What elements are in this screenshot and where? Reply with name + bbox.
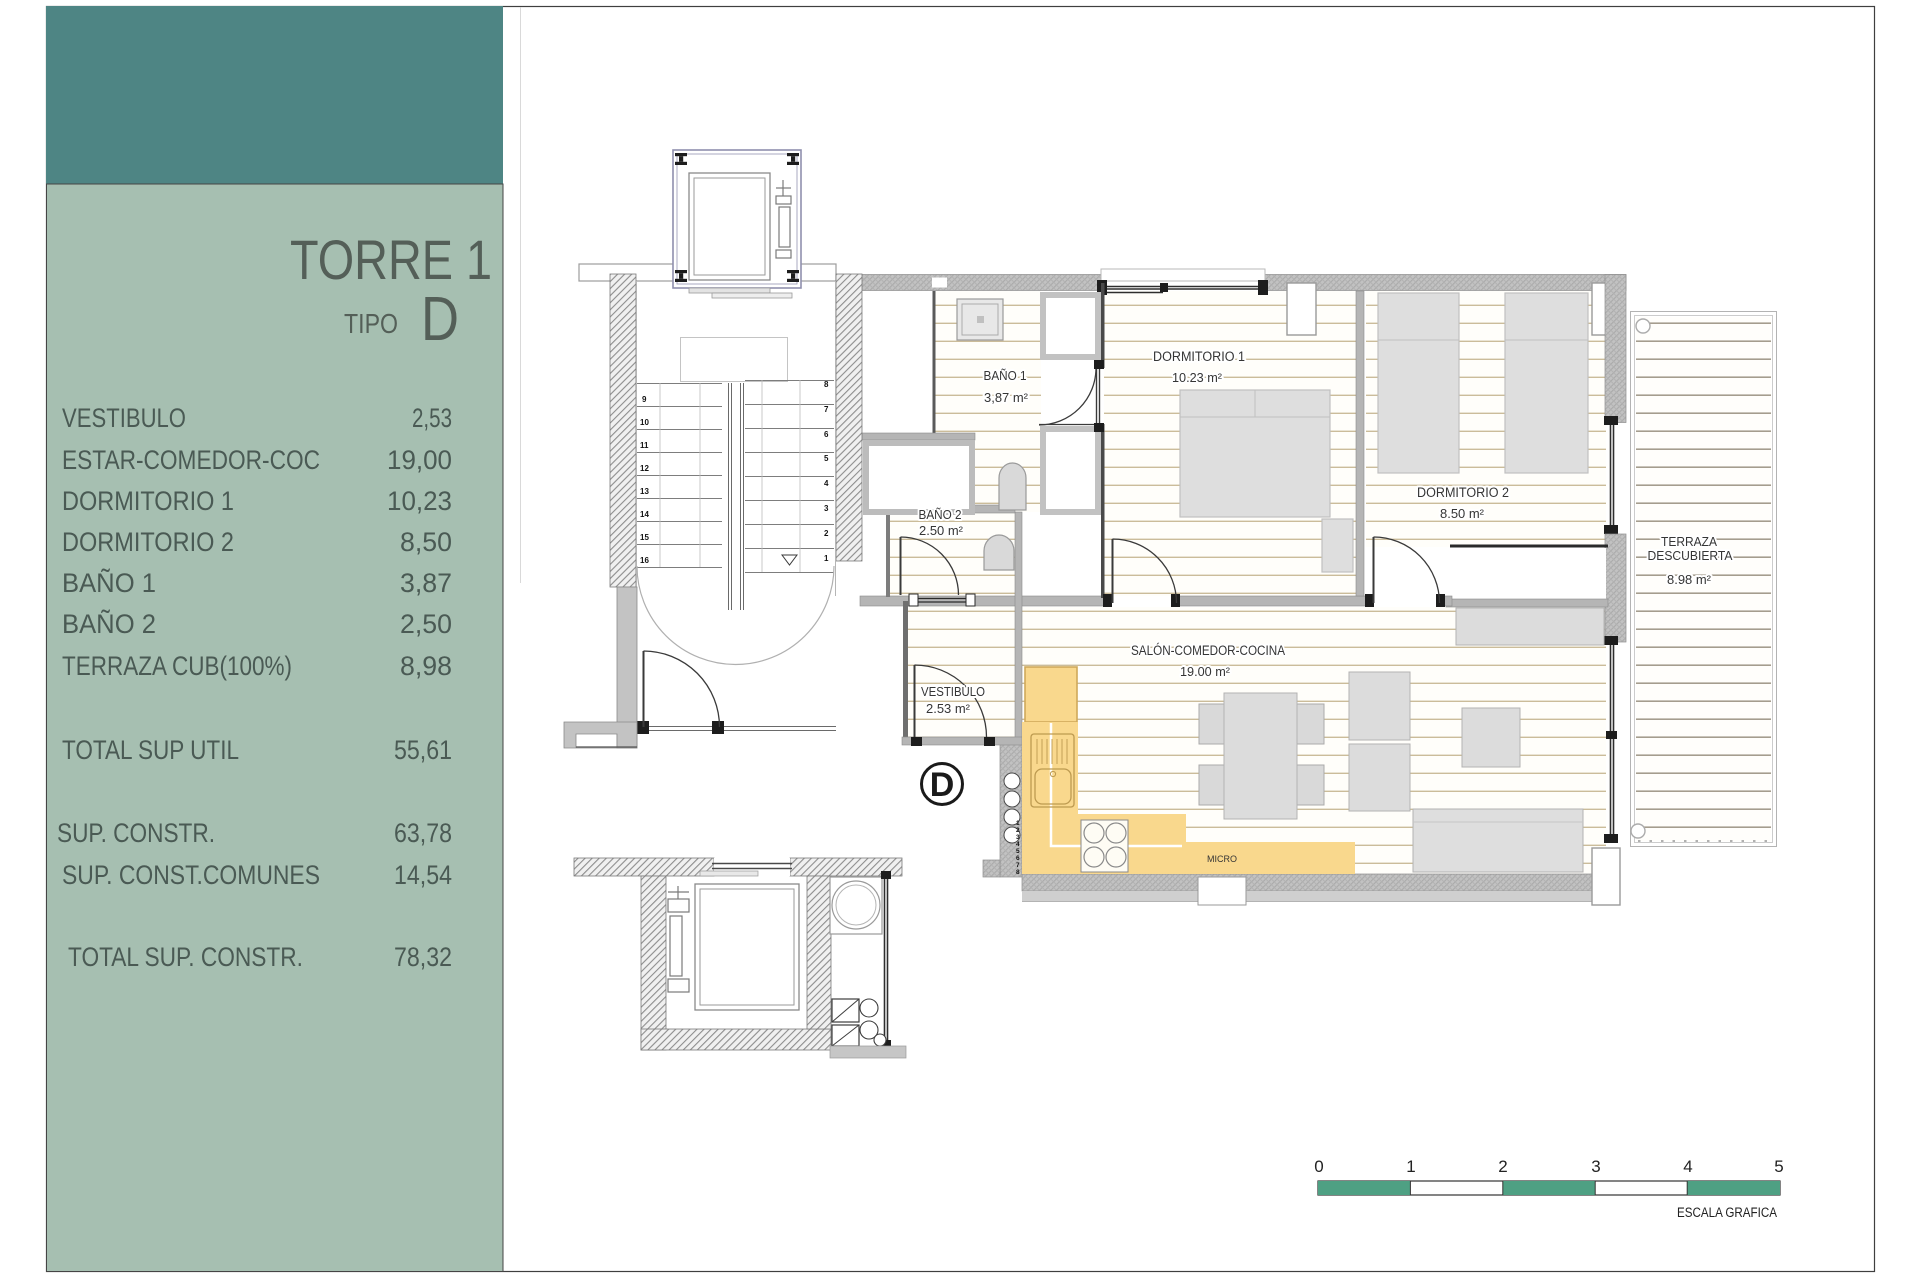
svg-text:8.98 m²: 8.98 m² — [1667, 573, 1711, 587]
svg-text:1: 1 — [824, 554, 829, 563]
svg-text:4: 4 — [1016, 841, 1020, 848]
svg-text:9: 9 — [642, 395, 647, 404]
svg-text:11: 11 — [640, 441, 649, 450]
svg-text:3: 3 — [1591, 1157, 1600, 1176]
svg-text:2,53: 2,53 — [412, 403, 452, 433]
svg-text:TORRE 1: TORRE 1 — [290, 228, 492, 291]
svg-text:15: 15 — [640, 533, 649, 542]
svg-text:2: 2 — [1016, 827, 1020, 834]
svg-text:TERRAZA CUB(100%): TERRAZA CUB(100%) — [62, 651, 292, 681]
svg-text:BAÑO 2: BAÑO 2 — [62, 609, 156, 639]
svg-text:3: 3 — [824, 504, 829, 513]
svg-text:TOTAL SUP. CONSTR.: TOTAL SUP. CONSTR. — [68, 942, 303, 972]
svg-text:16: 16 — [640, 556, 649, 565]
svg-text:4: 4 — [824, 479, 829, 488]
svg-text:1: 1 — [1016, 820, 1020, 827]
svg-text:2.53 m²: 2.53 m² — [926, 702, 970, 716]
svg-text:5: 5 — [1774, 1157, 1783, 1176]
svg-text:63,78: 63,78 — [394, 818, 452, 848]
svg-text:3: 3 — [1016, 834, 1020, 841]
svg-text:DORMITORIO 2: DORMITORIO 2 — [62, 527, 234, 557]
svg-text:D: D — [930, 766, 955, 804]
svg-text:TIPO: TIPO — [344, 308, 398, 339]
svg-text:MICRO: MICRO — [1207, 854, 1237, 864]
svg-text:BAÑO 1: BAÑO 1 — [984, 368, 1027, 383]
svg-text:14: 14 — [640, 510, 649, 519]
svg-text:TOTAL SUP UTIL: TOTAL SUP UTIL — [62, 735, 239, 765]
svg-text:3,87 m²: 3,87 m² — [984, 391, 1028, 405]
svg-text:2.50 m²: 2.50 m² — [919, 524, 963, 538]
svg-text:2: 2 — [824, 529, 829, 538]
svg-text:SUP. CONST.COMUNES: SUP. CONST.COMUNES — [62, 860, 320, 890]
svg-text:2,50: 2,50 — [400, 609, 452, 639]
svg-text:2: 2 — [1498, 1157, 1507, 1176]
svg-text:8.50 m²: 8.50 m² — [1440, 507, 1484, 521]
svg-text:3,87: 3,87 — [400, 568, 452, 598]
svg-text:VESTIBULO: VESTIBULO — [62, 403, 186, 433]
svg-text:10: 10 — [640, 418, 649, 427]
svg-text:7: 7 — [1016, 862, 1020, 869]
svg-text:14,54: 14,54 — [394, 860, 452, 890]
svg-text:19,00: 19,00 — [387, 445, 452, 475]
svg-text:ESTAR-COMEDOR-COC: ESTAR-COMEDOR-COC — [62, 445, 320, 475]
svg-text:8,98: 8,98 — [400, 651, 452, 681]
svg-text:19.00 m²: 19.00 m² — [1180, 665, 1230, 679]
svg-text:SALÓN-COMEDOR-COCINA: SALÓN-COMEDOR-COCINA — [1131, 643, 1285, 658]
svg-text:78,32: 78,32 — [394, 942, 452, 972]
svg-text:12: 12 — [640, 464, 649, 473]
svg-text:5: 5 — [824, 454, 829, 463]
svg-text:DORMITORIO 1: DORMITORIO 1 — [1153, 349, 1245, 364]
svg-text:4: 4 — [1683, 1157, 1692, 1176]
svg-text:0: 0 — [1314, 1157, 1323, 1176]
svg-text:DORMITORIO 2: DORMITORIO 2 — [1417, 485, 1509, 500]
svg-text:DESCUBIERTA: DESCUBIERTA — [1648, 548, 1733, 563]
svg-text:10,23: 10,23 — [387, 486, 452, 516]
svg-text:5: 5 — [1016, 848, 1020, 855]
svg-text:D: D — [421, 285, 459, 354]
svg-text:10.23 m²: 10.23 m² — [1172, 371, 1222, 385]
svg-text:BAÑO 2: BAÑO 2 — [919, 507, 962, 522]
svg-text:8: 8 — [1016, 869, 1020, 876]
svg-text:55,61: 55,61 — [394, 735, 452, 765]
svg-text:TERRAZA: TERRAZA — [1661, 534, 1717, 549]
svg-text:1: 1 — [1406, 1157, 1415, 1176]
svg-text:ESCALA GRAFICA: ESCALA GRAFICA — [1677, 1205, 1777, 1220]
svg-text:SUP. CONSTR.: SUP. CONSTR. — [57, 818, 215, 848]
svg-text:VESTIBULO: VESTIBULO — [921, 684, 985, 699]
svg-text:DORMITORIO 1: DORMITORIO 1 — [62, 486, 234, 516]
svg-text:8,50: 8,50 — [400, 527, 452, 557]
svg-text:6: 6 — [824, 430, 829, 439]
svg-text:BAÑO 1: BAÑO 1 — [62, 568, 156, 598]
svg-text:13: 13 — [640, 487, 649, 496]
svg-text:7: 7 — [824, 405, 829, 414]
svg-text:6: 6 — [1016, 855, 1020, 862]
svg-text:8: 8 — [824, 380, 829, 389]
